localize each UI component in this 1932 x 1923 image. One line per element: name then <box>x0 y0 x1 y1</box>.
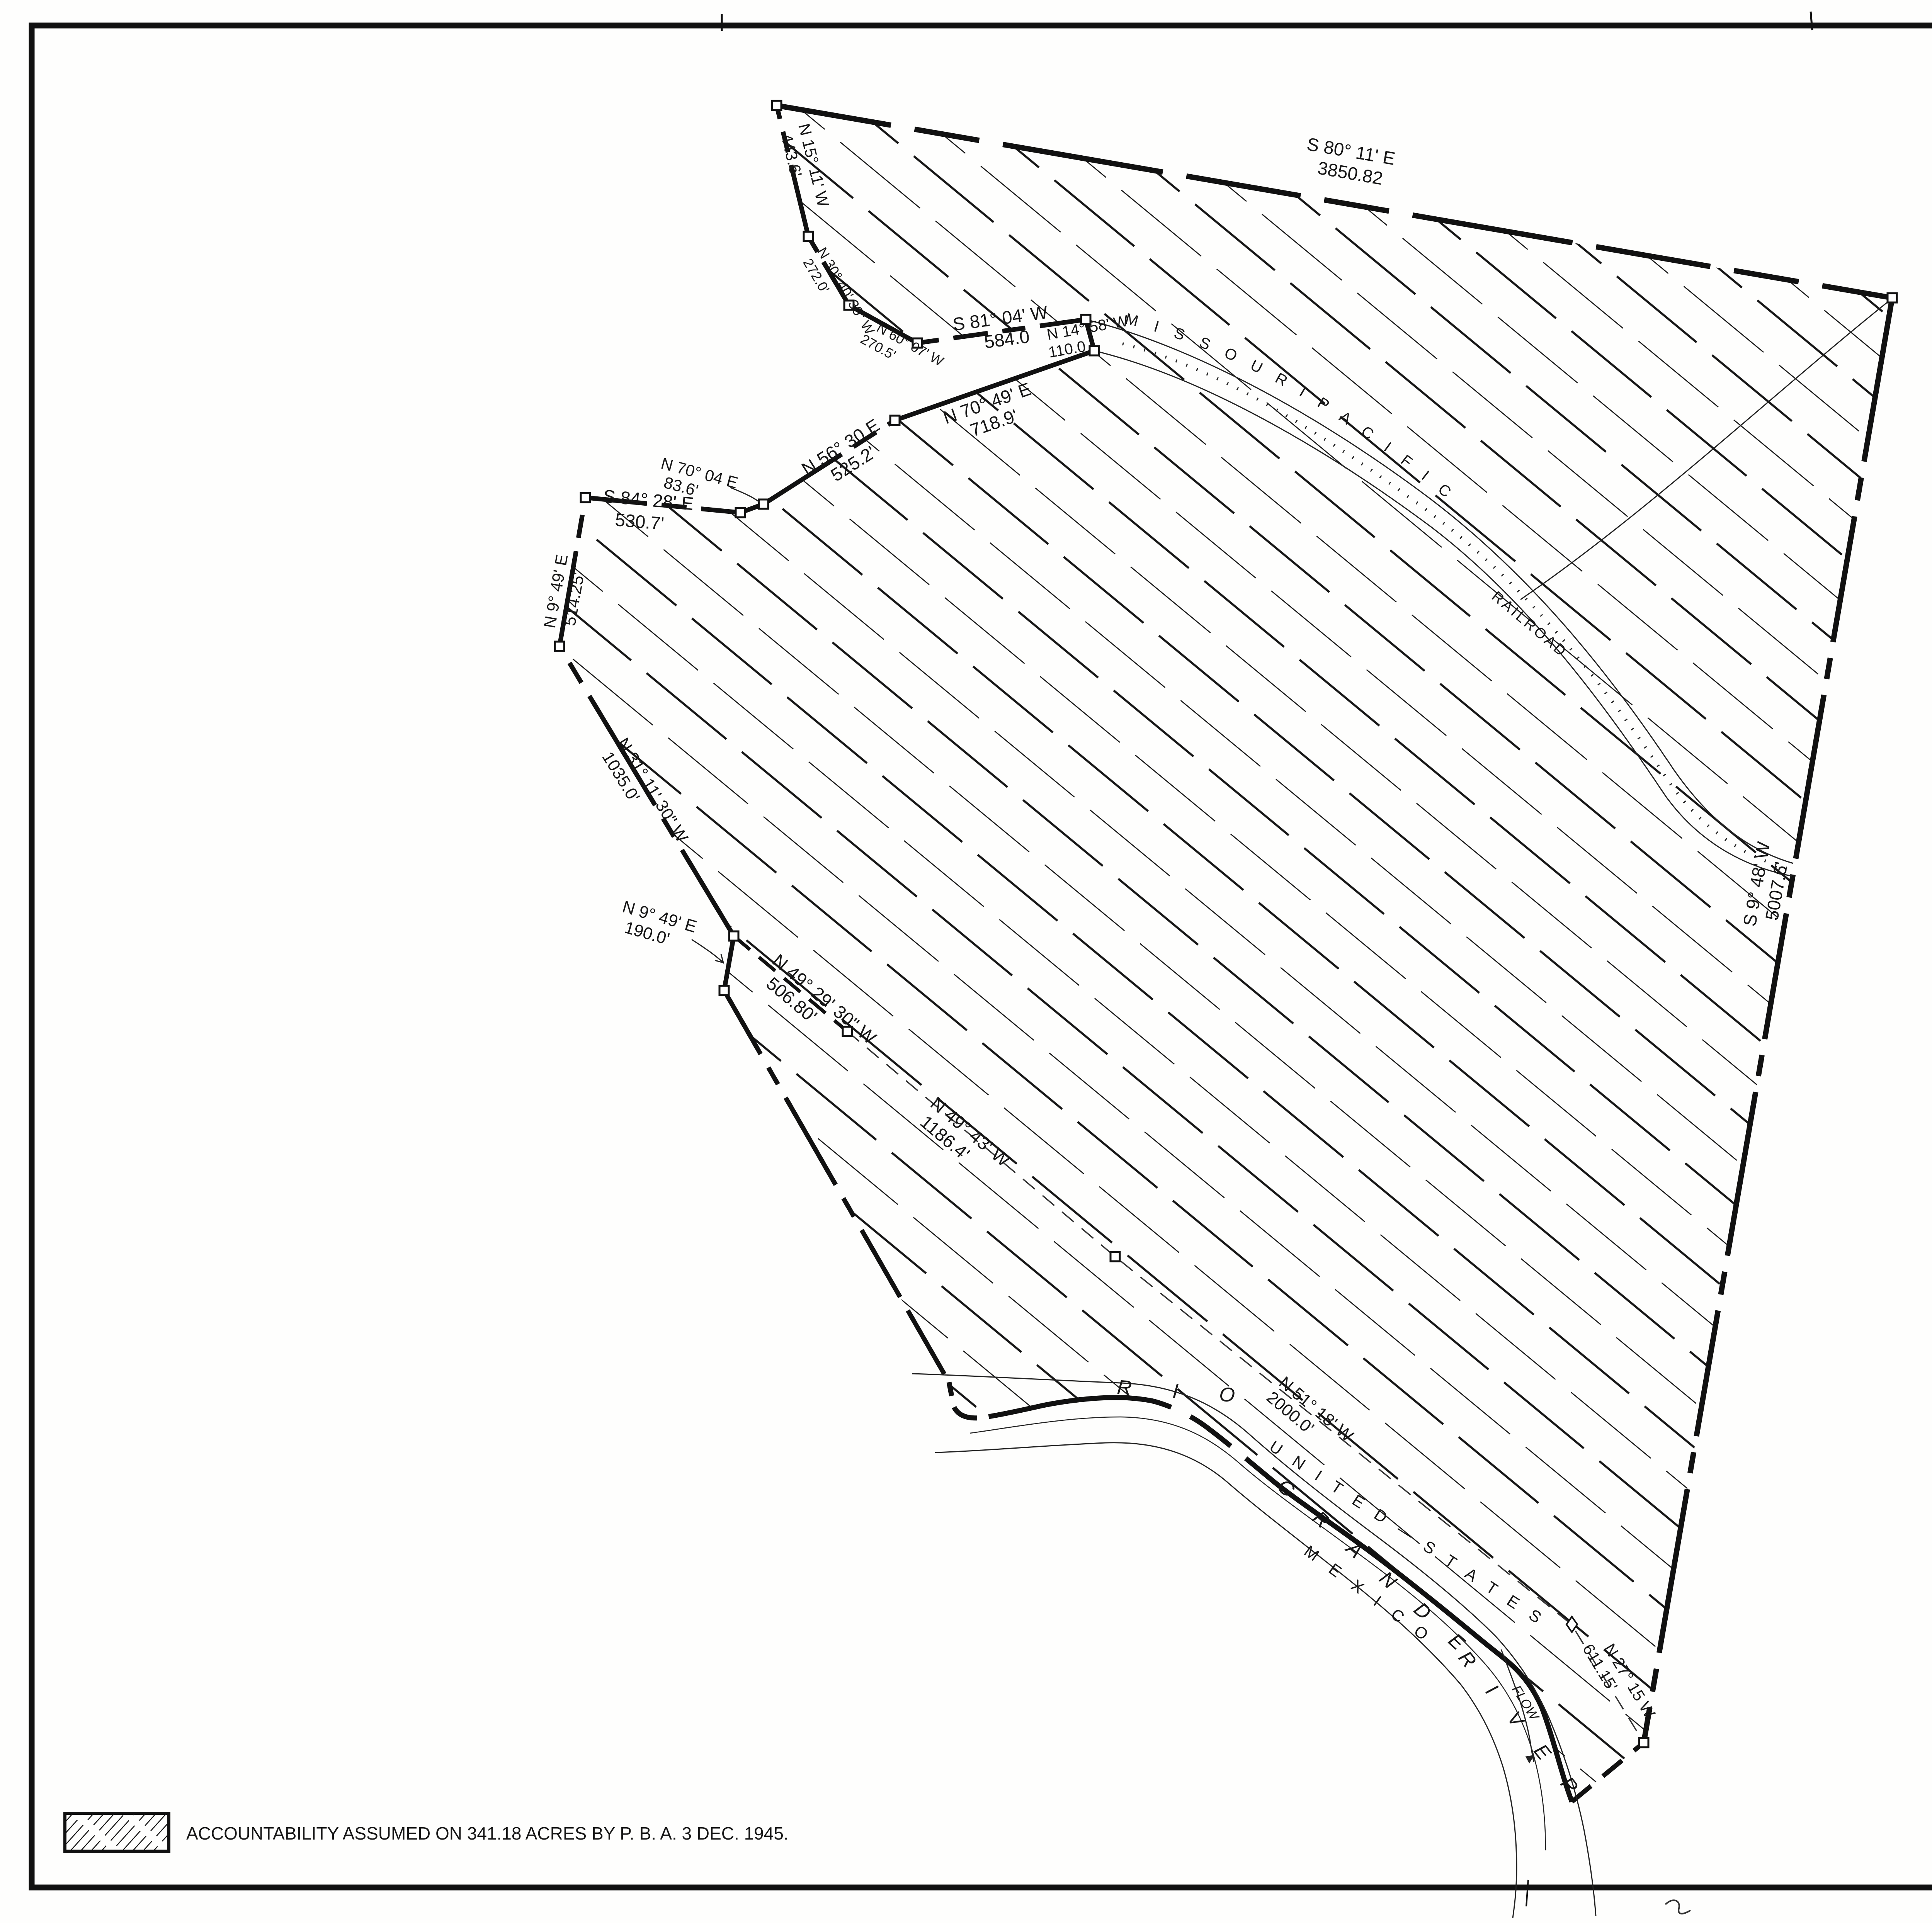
svg-text:ACCOUNTABILITY ASSUMED ON: ACCOUNTABILITY ASSUMED ON 341.18 ACRES B… <box>186 1823 789 1843</box>
svg-text:530.7': 530.7' <box>614 509 665 534</box>
